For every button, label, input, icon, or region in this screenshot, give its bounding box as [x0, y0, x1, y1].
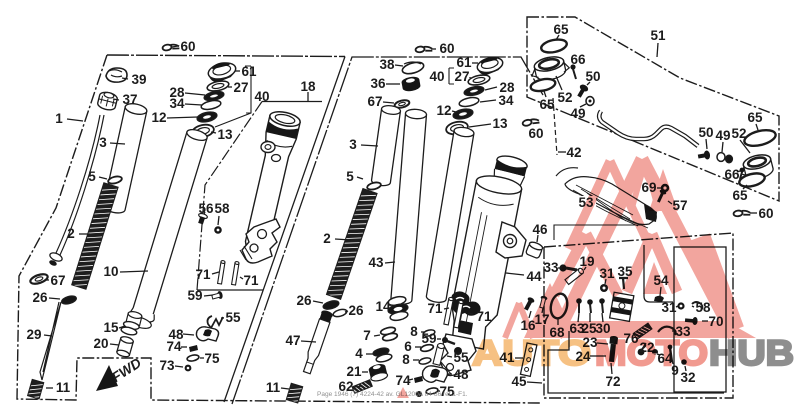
svg-text:2: 2: [323, 231, 331, 246]
svg-text:52: 52: [557, 90, 572, 105]
svg-text:71: 71: [476, 309, 492, 324]
svg-text:52: 52: [731, 126, 746, 141]
svg-text:10: 10: [103, 264, 118, 279]
svg-text:4: 4: [355, 346, 363, 361]
svg-text:34: 34: [498, 93, 514, 108]
svg-text:48: 48: [453, 367, 469, 382]
svg-text:Page 1946 (7) 4224-42 av. GL12: Page 1946 (7) 4224-42 av. GL1200A 84-86 …: [317, 391, 468, 398]
svg-text:7: 7: [363, 328, 371, 343]
svg-text:27: 27: [454, 69, 469, 84]
svg-text:46: 46: [532, 222, 548, 237]
svg-text:56: 56: [198, 201, 214, 216]
svg-text:45: 45: [511, 374, 527, 389]
svg-text:1: 1: [55, 111, 63, 126]
svg-text:14: 14: [375, 299, 391, 314]
svg-text:38: 38: [379, 57, 395, 72]
svg-text:66: 66: [570, 52, 586, 67]
svg-text:36: 36: [370, 76, 386, 91]
svg-text:67: 67: [367, 94, 382, 109]
svg-text:33: 33: [543, 260, 559, 275]
svg-text:49: 49: [570, 106, 585, 121]
svg-text:75: 75: [204, 351, 220, 366]
svg-text:71: 71: [427, 301, 443, 316]
svg-text:26: 26: [348, 303, 364, 318]
svg-text:39: 39: [131, 72, 146, 87]
svg-text:12: 12: [151, 110, 166, 125]
svg-text:61: 61: [456, 55, 472, 70]
svg-text:50: 50: [698, 125, 713, 140]
svg-text:51: 51: [650, 28, 666, 43]
svg-text:65: 65: [732, 188, 748, 203]
svg-text:60: 60: [180, 39, 195, 54]
svg-text:31: 31: [661, 300, 677, 315]
svg-text:34: 34: [169, 96, 185, 111]
svg-text:60: 60: [439, 41, 454, 56]
svg-text:59: 59: [187, 288, 202, 303]
svg-text:47: 47: [285, 333, 300, 348]
svg-text:65: 65: [747, 110, 763, 125]
svg-text:3: 3: [349, 137, 357, 152]
svg-text:74: 74: [166, 339, 182, 354]
svg-text:60: 60: [758, 206, 773, 221]
svg-text:3: 3: [99, 135, 107, 150]
svg-text:27: 27: [233, 80, 248, 95]
svg-text:20: 20: [93, 336, 108, 351]
svg-text:42: 42: [566, 145, 581, 160]
svg-text:40: 40: [254, 89, 269, 104]
svg-text:8: 8: [402, 352, 410, 367]
svg-text:43: 43: [368, 255, 384, 270]
svg-text:13: 13: [492, 116, 508, 131]
svg-text:40: 40: [429, 69, 444, 84]
svg-text:72: 72: [605, 374, 620, 389]
svg-text:26: 26: [32, 290, 48, 305]
svg-text:73: 73: [159, 358, 175, 373]
svg-text:59: 59: [421, 331, 436, 346]
svg-text:71: 71: [195, 267, 211, 282]
svg-text:74: 74: [395, 373, 411, 388]
svg-text:58: 58: [695, 300, 711, 315]
svg-text:58: 58: [214, 201, 230, 216]
svg-text:MOTO: MOTO: [595, 334, 708, 373]
svg-text:44: 44: [526, 269, 542, 284]
svg-text:12: 12: [436, 103, 451, 118]
svg-text:2: 2: [67, 226, 75, 241]
svg-text:66: 66: [724, 167, 740, 182]
svg-text:8: 8: [410, 324, 418, 339]
svg-text:29: 29: [26, 327, 41, 342]
svg-text:55: 55: [225, 310, 241, 325]
svg-text:60: 60: [528, 126, 543, 141]
svg-text:15: 15: [103, 320, 119, 335]
svg-text:71: 71: [243, 273, 259, 288]
svg-text:18: 18: [300, 79, 316, 94]
svg-text:67: 67: [50, 273, 65, 288]
svg-text:HUB: HUB: [709, 334, 794, 373]
svg-text:21: 21: [346, 364, 362, 379]
svg-text:AUTO: AUTO: [472, 334, 591, 373]
svg-text:11: 11: [56, 380, 71, 395]
svg-text:13: 13: [217, 127, 233, 142]
svg-text:55: 55: [453, 350, 469, 365]
svg-text:26: 26: [296, 293, 312, 308]
svg-text:65: 65: [539, 97, 555, 112]
svg-text:5: 5: [346, 169, 354, 184]
svg-text:65: 65: [553, 22, 569, 37]
svg-text:49: 49: [715, 128, 730, 143]
svg-text:50: 50: [585, 69, 600, 84]
svg-text:11: 11: [266, 380, 281, 395]
svg-text:5: 5: [88, 169, 96, 184]
